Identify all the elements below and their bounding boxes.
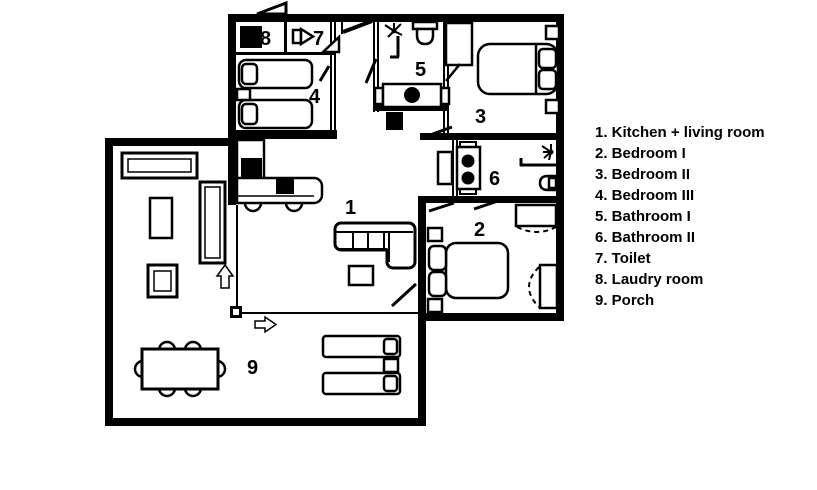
- legend-item-kitchen-living: 1. Kitchen + living room: [595, 122, 805, 143]
- room-porch: 9: [135, 336, 400, 396]
- wall-bedroom2-bottom: [420, 133, 556, 140]
- bed-pillow-icon: [429, 272, 446, 296]
- wall-porch-right: [418, 313, 426, 426]
- wall-bedroom3-right-a: [330, 22, 332, 133]
- legend: 1. Kitchen + living room 2. Bedroom I 3.…: [595, 122, 805, 311]
- wall-lower-top: [105, 138, 236, 146]
- living-boundary-vertical-line: [236, 205, 238, 312]
- boundary-corner-post-inner: [233, 309, 239, 315]
- closet-swing-arc: [529, 267, 539, 307]
- room-label-kitchen-living: 1: [345, 197, 356, 219]
- room-label-bathroom1: 5: [415, 59, 426, 81]
- toilet-bowl-icon: [301, 29, 313, 44]
- wall-bedroom1-left: [418, 196, 426, 313]
- lounger-icon: [323, 373, 400, 394]
- door-swing-bedroom3: [320, 66, 329, 81]
- door-swing-entrance: [343, 21, 372, 32]
- wardrobe-icon: [446, 23, 472, 65]
- bed-pillow-icon: [242, 104, 257, 124]
- nightstand-icon: [546, 100, 559, 113]
- bed-pillow-icon: [539, 49, 556, 68]
- double-bed-icon: [446, 243, 508, 298]
- nightstand-icon: [428, 228, 442, 241]
- shower-icon: [385, 23, 402, 57]
- kitchen-counter-icon: [237, 140, 322, 211]
- room-label-bedroom1: 2: [474, 219, 485, 241]
- room-toilet: 7: [293, 28, 324, 50]
- stove-icon: [276, 178, 294, 194]
- wall-bedroom1-bottom: [420, 313, 564, 321]
- room-kitchen-living: 1: [122, 140, 415, 297]
- lounger-icon: [323, 336, 400, 357]
- legend-item-toilet: 7. Toilet: [595, 248, 805, 269]
- wall-upper-left: [228, 14, 236, 205]
- wall-porch-bottom: [105, 418, 426, 426]
- kitchen-sink-icon: [241, 158, 262, 178]
- lounger-side-table-icon: [384, 359, 398, 372]
- nightstand-icon: [237, 89, 250, 100]
- room-bedroom2: 3: [446, 23, 559, 128]
- washbasin-icon: [457, 142, 480, 194]
- room-bathroom2: 6: [438, 142, 556, 194]
- nightstand-icon: [546, 26, 559, 39]
- legend-item-bedroom1: 2. Bedroom I: [595, 143, 805, 164]
- corner-sofa-icon: [335, 223, 415, 268]
- arrow-up-icon: [217, 265, 233, 288]
- toilet-icon: [413, 22, 437, 44]
- wall-bathroom2-bottom: [420, 196, 556, 203]
- bed-pillow-icon: [539, 70, 556, 89]
- nightstand-icon: [428, 299, 442, 312]
- closet-swing-arc: [517, 227, 556, 232]
- side-table-icon: [150, 198, 172, 238]
- room-bedroom1: 2: [428, 205, 557, 312]
- dining-table-icon: [135, 342, 225, 396]
- wall-left-lower: [105, 138, 113, 426]
- wall-laundry-toilet-divider: [284, 22, 287, 53]
- bed-pillow-icon: [242, 64, 257, 84]
- door-swing-bedroom1-left: [429, 203, 454, 211]
- sink-icon: [540, 176, 556, 190]
- door-swing-outward-top: [257, 3, 286, 14]
- wall-bedroom2-left-a: [443, 22, 445, 140]
- hall-cabinet: [386, 112, 403, 130]
- room-laundry: 8: [240, 26, 271, 50]
- sideboard-icon: [122, 153, 197, 178]
- floor-plan-page: 8 7 4: [0, 0, 817, 490]
- door-swing-porch: [392, 284, 416, 306]
- wall-bedroom3-bottom: [228, 130, 337, 139]
- legend-item-bedroom3: 4. Bedroom III: [595, 185, 805, 206]
- cabinet-icon: [438, 152, 452, 184]
- legend-item-bathroom2: 6. Bathroom II: [595, 227, 805, 248]
- armchair-icon: [148, 265, 177, 297]
- coffee-table-icon: [349, 266, 373, 285]
- room-label-porch: 9: [247, 357, 258, 379]
- room-label-toilet: 7: [313, 28, 324, 50]
- arrow-right-icon: [255, 317, 276, 332]
- washing-machine-icon: [240, 26, 262, 48]
- sofa-icon: [200, 182, 225, 263]
- closet-icon: [516, 205, 556, 226]
- direction-arrows: [217, 265, 276, 332]
- closet-icon: [540, 265, 557, 308]
- legend-item-bathroom1: 5. Bathroom I: [595, 206, 805, 227]
- legend-item-laundry: 8. Laudry room: [595, 269, 805, 290]
- legend-item-porch: 9. Porch: [595, 290, 805, 311]
- bathtub-drain: [404, 87, 420, 103]
- room-bathroom1: 5: [375, 22, 449, 107]
- door-jamb-entrance: [341, 22, 343, 34]
- bed-pillow-icon: [429, 246, 446, 270]
- room-label-bathroom2: 6: [489, 168, 500, 190]
- room-bedroom3: 4: [237, 60, 321, 128]
- bathtub-icon: [375, 84, 449, 107]
- room-label-bedroom3: 4: [309, 86, 321, 108]
- porch-boundary-horizontal-line: [242, 312, 418, 314]
- room-label-laundry: 8: [260, 28, 271, 50]
- legend-item-bedroom2: 3. Bedroom II: [595, 164, 805, 185]
- shower-icon: [520, 144, 556, 166]
- room-label-bedroom2: 3: [475, 106, 486, 128]
